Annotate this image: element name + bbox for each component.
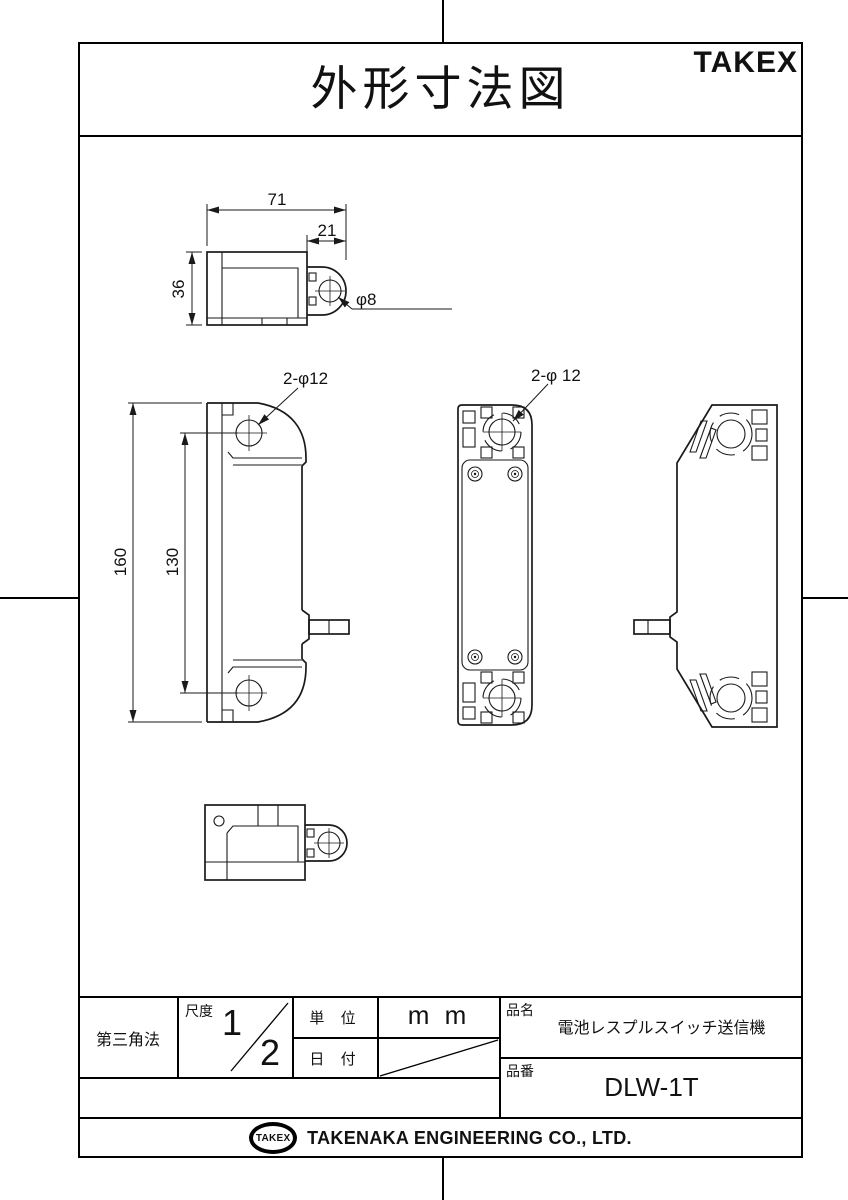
dim-side-pitch: 130: [163, 548, 182, 576]
front-view: 2-φ 12: [458, 366, 581, 725]
bottom-view: [205, 805, 347, 880]
dim-top-height: 36: [169, 280, 188, 299]
unit-value: m m: [378, 995, 500, 1036]
dim-top-width: 71: [268, 190, 287, 209]
rear-view: [634, 405, 777, 727]
product-name-value: 電池レスプルスイッチ送信機: [520, 1014, 803, 1038]
scale-numerator: 1: [222, 1002, 242, 1044]
date-label: 日 付: [293, 1038, 378, 1078]
date-blank-slash: [380, 1040, 498, 1076]
dim-side-holes: 2-φ12: [283, 369, 328, 388]
dim-side-height: 160: [111, 548, 130, 576]
dim-top-hole: φ8: [356, 290, 376, 309]
projection-method: 第三角法: [78, 997, 178, 1078]
dim-front-holes: 2-φ 12: [531, 366, 581, 385]
scale-label: 尺度: [185, 1001, 213, 1021]
takex-oval-logo: TAKEX: [249, 1122, 297, 1154]
company-name: TAKENAKA ENGINEERING CO., LTD.: [307, 1128, 632, 1149]
unit-label: 単 位: [293, 997, 378, 1038]
scale-denominator: 2: [260, 1032, 280, 1074]
part-number-value: DLW-1T: [500, 1058, 803, 1116]
dim-top-eyelet: 21: [318, 221, 337, 240]
footer: TAKEX TAKENAKA ENGINEERING CO., LTD.: [78, 1118, 803, 1158]
brand-logo-text: TAKEX: [694, 46, 798, 80]
side-view: 160 130 2-φ12: [111, 369, 349, 722]
top-view: 71 21 36 φ8: [169, 190, 452, 325]
drawing-sheet: 71 21 36 φ8: [0, 0, 848, 1200]
